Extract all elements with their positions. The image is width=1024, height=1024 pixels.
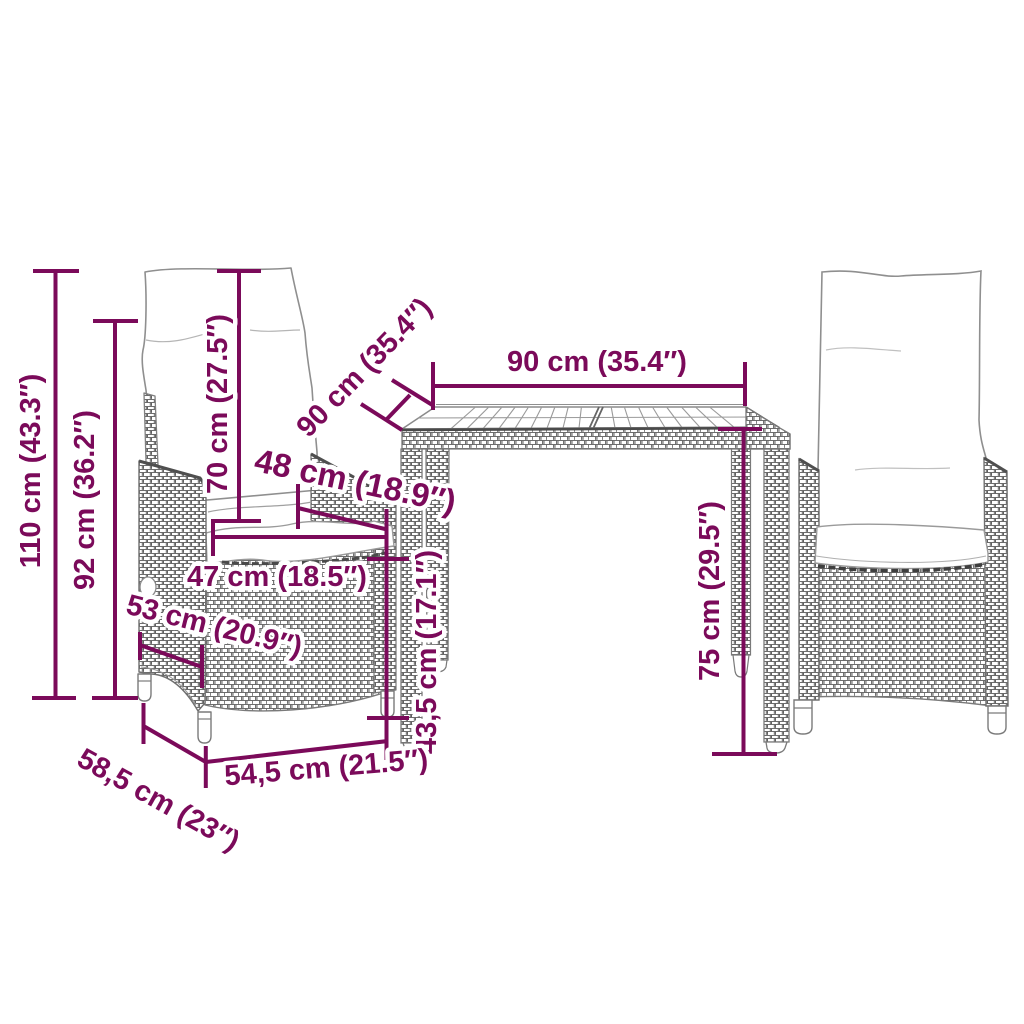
svg-text:70 cm (27.5″): 70 cm (27.5″)	[202, 314, 234, 494]
svg-text:47 cm (18.5″): 47 cm (18.5″)	[187, 561, 367, 593]
svg-text:54,5 cm (21.5″): 54,5 cm (21.5″)	[223, 744, 429, 793]
svg-text:92 cm (36.2″): 92 cm (36.2″)	[69, 410, 101, 590]
svg-text:43,5 cm (17.1″): 43,5 cm (17.1″)	[411, 550, 443, 754]
svg-text:90 cm (35.4″): 90 cm (35.4″)	[507, 346, 687, 378]
svg-text:110 cm (43.3″): 110 cm (43.3″)	[15, 374, 47, 568]
svg-text:75 cm (29.5″): 75 cm (29.5″)	[694, 501, 726, 681]
